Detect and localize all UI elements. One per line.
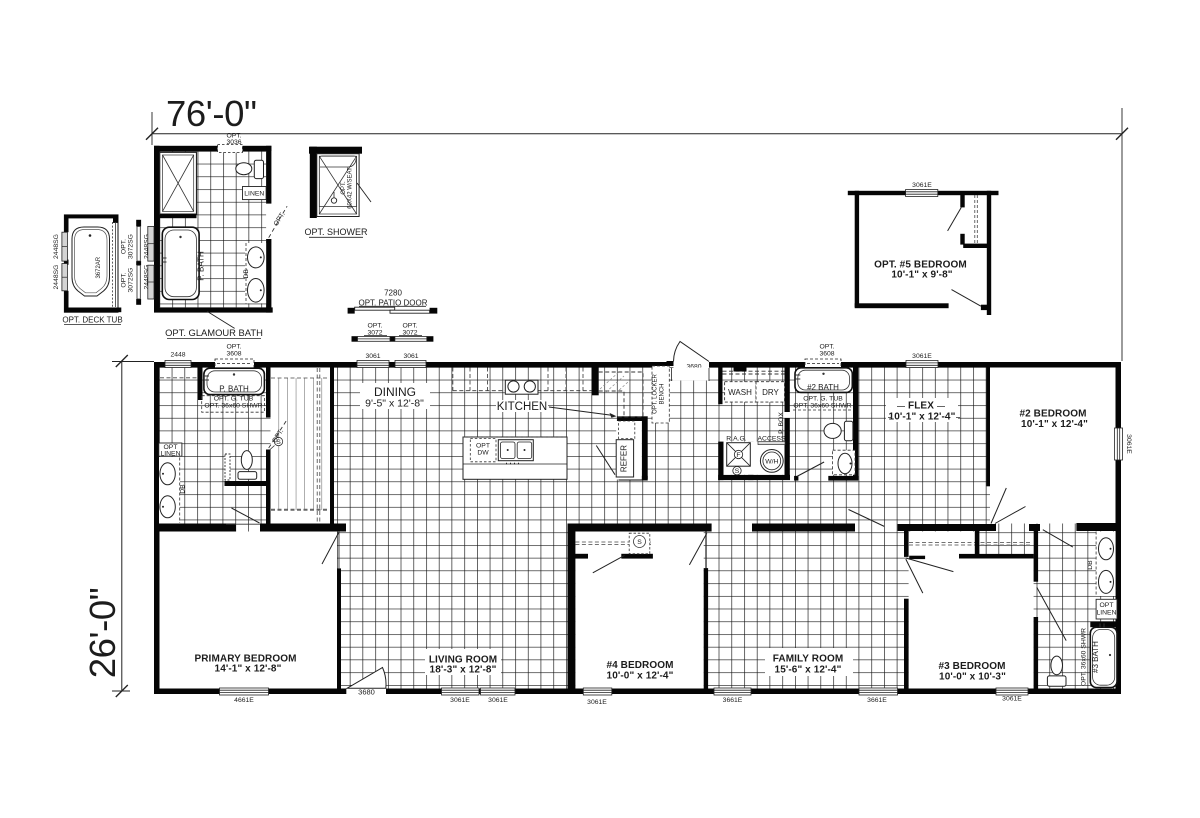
svg-text:LINEN: LINEN [244,191,264,198]
svg-text:BENCH: BENCH [660,383,666,404]
svg-text:OPT. SHOWER: OPT. SHOWER [304,227,368,237]
svg-text:7280: 7280 [384,289,402,298]
svg-text:3061E: 3061E [912,353,932,360]
svg-text:OPT. DECK TUB: OPT. DECK TUB [62,316,122,325]
svg-text:OPT. G. TUB: OPT. G. TUB [214,396,254,403]
svg-text:10'-0" x 12'-4": 10'-0" x 12'-4" [607,671,674,682]
svg-text:OPT.: OPT. [341,181,347,195]
svg-text:#3 BEDROOM: #3 BEDROOM [938,661,1005,672]
svg-text:FLEX: FLEX [908,401,934,412]
svg-text:OPT. 36x60 SHWR: OPT. 36x60 SHWR [204,403,262,410]
svg-text:OPT. 36x60 SHWR: OPT. 36x60 SHWR [793,403,851,410]
svg-text:3672AR: 3672AR [96,256,102,278]
svg-text:3072SG: 3072SG [128,234,135,259]
svg-text:3061E: 3061E [587,699,607,706]
svg-text:W/H: W/H [765,458,778,465]
svg-text:DW: DW [477,450,489,457]
svg-text:S: S [735,468,740,475]
svg-text:R.A.G.: R.A.G. [726,436,747,443]
svg-text:DB: DB [243,269,250,279]
svg-text:#2 BATH: #2 BATH [807,383,839,392]
svg-text:10'-1" x 12'-4": 10'-1" x 12'-4" [889,412,956,423]
svg-text:OPT.: OPT. [367,323,382,330]
svg-text:DRY: DRY [762,388,779,397]
svg-text:3608: 3608 [819,351,834,358]
svg-text:LINEN: LINEN [160,451,180,458]
svg-text:3661E: 3661E [867,697,887,704]
svg-text:DB: DB [1087,560,1094,570]
svg-text:60X42 W/SEAT: 60X42 W/SEAT [348,167,354,209]
svg-text:DB: DB [180,484,187,494]
svg-text:#2 BEDROOM: #2 BEDROOM [1019,409,1086,420]
svg-text:3061E: 3061E [912,182,932,189]
svg-text:OPT. LOCKER: OPT. LOCKER [653,374,659,414]
svg-text:#3 BATH: #3 BATH [1091,641,1100,673]
svg-text:FAMILY ROOM: FAMILY ROOM [773,654,844,665]
svg-text:4661E: 4661E [234,697,254,704]
svg-text:KITCHEN: KITCHEN [497,401,547,413]
svg-text:3061E: 3061E [1125,434,1132,454]
svg-text:3061E: 3061E [1002,696,1022,703]
svg-text:3036: 3036 [226,139,241,146]
svg-text:3072SG: 3072SG [128,268,135,293]
svg-text:3680: 3680 [358,688,375,697]
svg-text:OPT.: OPT. [121,239,128,254]
svg-text:REFER: REFER [620,445,629,472]
svg-text:LINEN: LINEN [1096,610,1116,617]
svg-text:F: F [736,452,740,459]
svg-text:15'-6" x 12'-4": 15'-6" x 12'-4" [775,665,842,676]
svg-text:9'-5" x 12'-8": 9'-5" x 12'-8" [365,398,424,410]
svg-text:3061E: 3061E [488,697,508,704]
svg-text:OPT: OPT [476,443,490,450]
svg-text:14'-1" x 12'-8": 14'-1" x 12'-8" [215,664,282,675]
svg-text:OPT.: OPT. [402,323,417,330]
svg-text:OPT. 36x60 SHWR: OPT. 36x60 SHWR [1081,628,1088,686]
svg-text:S: S [637,539,642,546]
svg-text:2448SG: 2448SG [53,234,60,259]
svg-text:3061: 3061 [365,353,380,360]
svg-text:OPT: OPT [1100,602,1114,609]
svg-text:OPT.: OPT. [121,272,128,287]
svg-text:2448: 2448 [170,352,185,359]
svg-text:18'-3" x 12'-8": 18'-3" x 12'-8" [430,665,497,676]
svg-text:P. BOX: P. BOX [778,412,785,434]
svg-text:26'-0": 26'-0" [82,588,123,679]
svg-text:76'-0": 76'-0" [166,93,257,134]
svg-text:P. BATH: P. BATH [197,251,206,281]
svg-text:10'-0" x 10'-3": 10'-0" x 10'-3" [939,672,1006,683]
svg-text:3661E: 3661E [723,697,743,704]
svg-text:OPT. GLAMOUR BATH: OPT. GLAMOUR BATH [165,327,263,338]
svg-text:10'-1" x 12'-4": 10'-1" x 12'-4" [1021,419,1088,430]
svg-text:#4 BEDROOM: #4 BEDROOM [606,660,673,671]
svg-text:10'-1" x 9'-8": 10'-1" x 9'-8" [891,270,952,281]
svg-text:3608: 3608 [226,351,241,358]
svg-text:OPT.: OPT. [819,344,834,351]
svg-text:3061E: 3061E [450,697,470,704]
svg-text:2448SG: 2448SG [53,265,60,290]
svg-text:OPT. G. TUB: OPT. G. TUB [803,396,843,403]
svg-text:WASH: WASH [728,388,752,397]
svg-text:OPT.: OPT. [226,344,241,351]
svg-text:P. BATH: P. BATH [219,385,249,394]
svg-text:3061: 3061 [403,353,418,360]
